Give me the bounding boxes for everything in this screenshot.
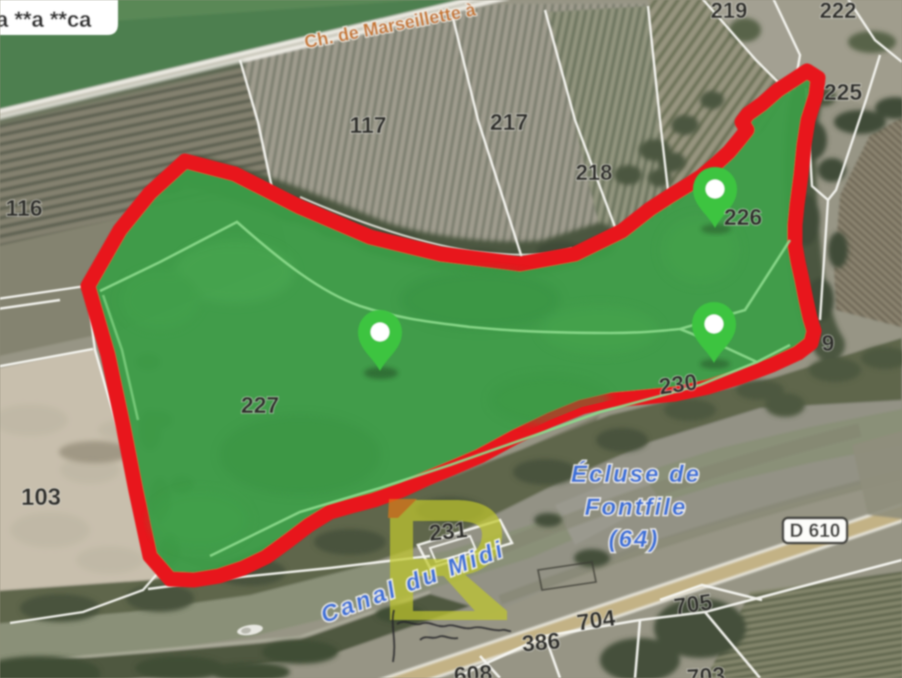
svg-text:386: 386 <box>521 627 561 656</box>
svg-text:705: 705 <box>672 588 714 619</box>
svg-text:225: 225 <box>824 79 863 105</box>
svg-text:704: 704 <box>575 604 617 635</box>
svg-text:9: 9 <box>822 330 835 356</box>
svg-text:231: 231 <box>428 516 469 546</box>
svg-text:226: 226 <box>724 204 762 230</box>
svg-text:D 610: D 610 <box>790 521 841 542</box>
svg-text:218: 218 <box>576 160 613 185</box>
svg-text:217: 217 <box>490 109 528 135</box>
svg-text:a **a **ca: a **a **ca <box>0 7 92 32</box>
svg-text:608: 608 <box>453 660 493 678</box>
svg-text:222: 222 <box>820 0 857 23</box>
svg-text:703: 703 <box>686 662 726 678</box>
svg-text:(64): (64) <box>609 526 660 553</box>
svg-text:227: 227 <box>241 392 279 418</box>
svg-text:219: 219 <box>711 0 748 23</box>
svg-text:Fontfile: Fontfile <box>585 494 688 521</box>
svg-text:116: 116 <box>5 195 42 221</box>
svg-text:117: 117 <box>349 112 386 138</box>
svg-text:Écluse de: Écluse de <box>571 460 701 488</box>
svg-text:103: 103 <box>21 484 61 511</box>
svg-text:230: 230 <box>657 368 699 399</box>
